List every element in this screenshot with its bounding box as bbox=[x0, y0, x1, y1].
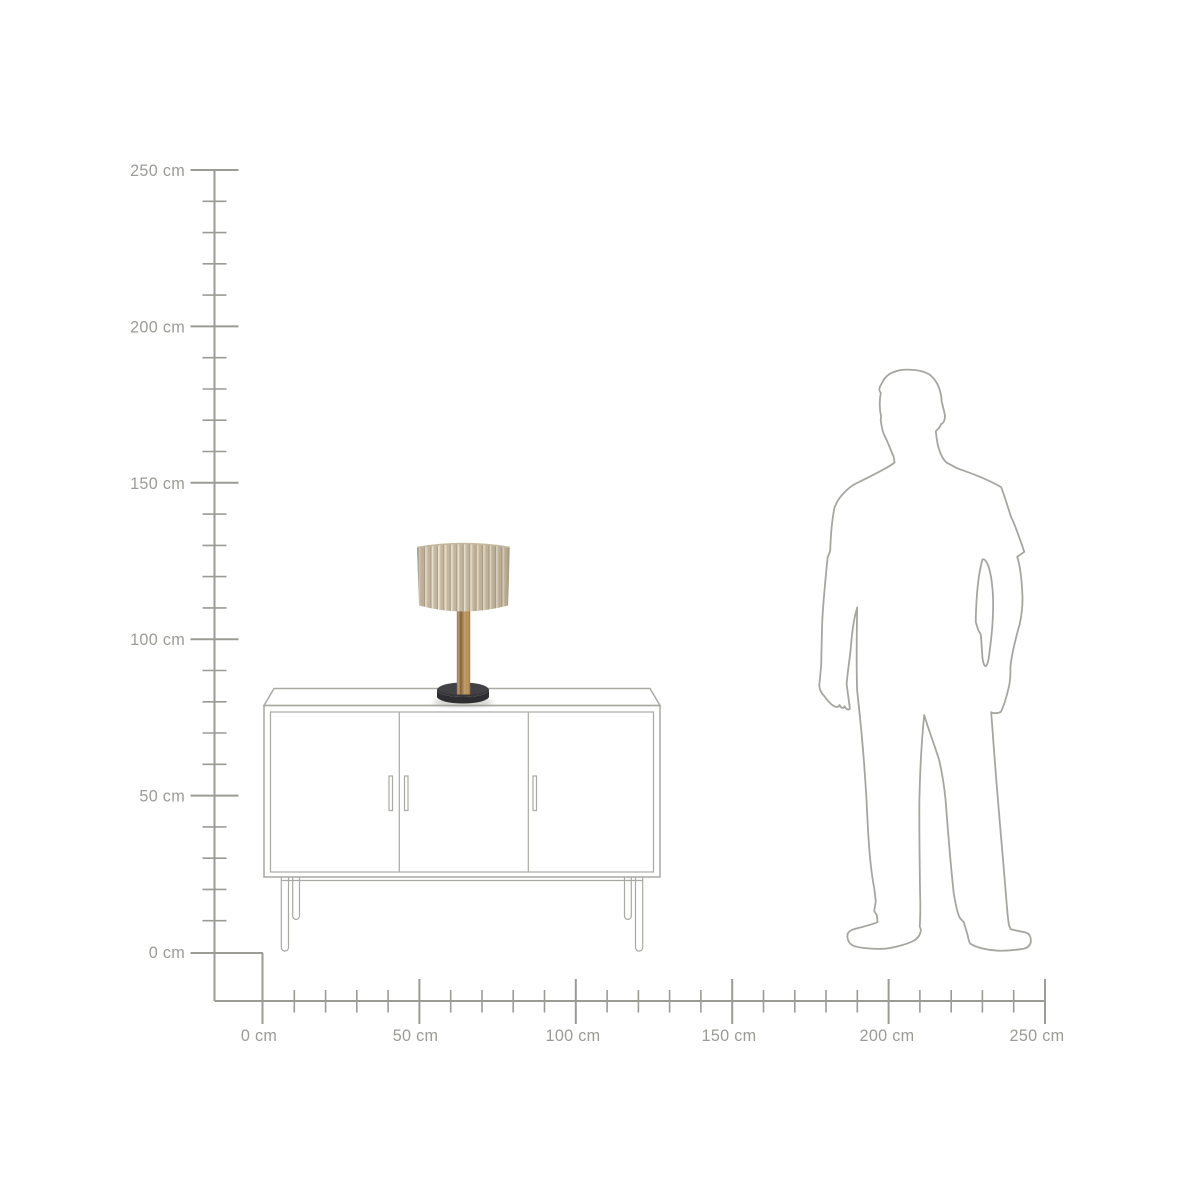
svg-text:150 cm: 150 cm bbox=[130, 475, 185, 493]
svg-text:200 cm: 200 cm bbox=[860, 1027, 915, 1045]
svg-text:100 cm: 100 cm bbox=[546, 1027, 601, 1045]
svg-text:0 cm: 0 cm bbox=[149, 944, 185, 962]
svg-text:50 cm: 50 cm bbox=[393, 1027, 439, 1045]
svg-text:50 cm: 50 cm bbox=[139, 788, 185, 806]
svg-text:0 cm: 0 cm bbox=[241, 1027, 277, 1045]
svg-text:150 cm: 150 cm bbox=[702, 1027, 757, 1045]
svg-text:250 cm: 250 cm bbox=[1010, 1027, 1065, 1045]
svg-text:100 cm: 100 cm bbox=[130, 631, 185, 649]
svg-text:250 cm: 250 cm bbox=[130, 162, 185, 180]
svg-text:200 cm: 200 cm bbox=[130, 318, 185, 336]
